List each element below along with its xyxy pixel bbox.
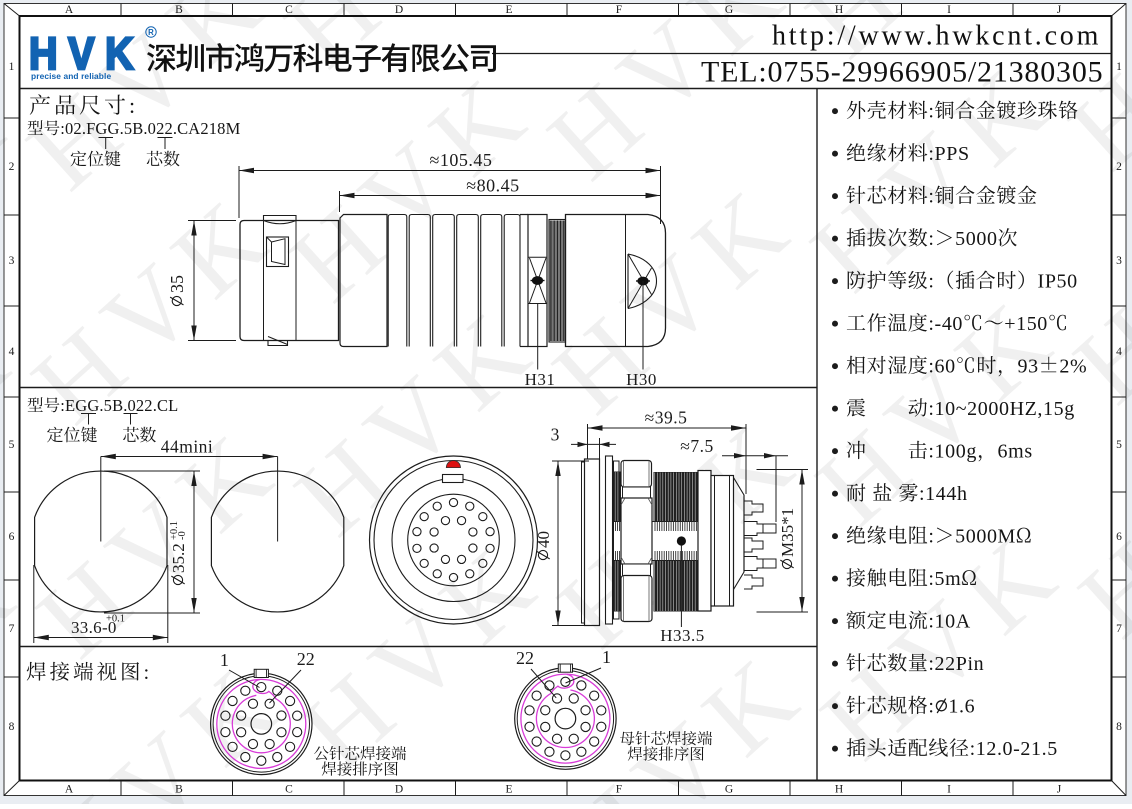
svg-text:5: 5 (9, 439, 15, 451)
svg-text:D: D (395, 783, 403, 795)
svg-text:E: E (505, 4, 512, 16)
svg-text:7: 7 (1116, 623, 1122, 635)
svg-text:工作温度:-40℃～+150℃: 工作温度:-40℃～+150℃ (846, 312, 1069, 335)
svg-text:≈39.5: ≈39.5 (645, 408, 688, 428)
svg-text:额定电流:10A: 额定电流:10A (846, 610, 971, 632)
svg-text:焊接排序图: 焊接排序图 (321, 761, 399, 779)
svg-text:H31: H31 (525, 370, 556, 389)
svg-text:I: I (947, 783, 951, 795)
svg-text:型号:02.FGG.5B.022.CA218M: 型号:02.FGG.5B.022.CA218M (27, 119, 241, 138)
svg-text:F: F (616, 4, 622, 16)
svg-text:TEL:0755-29966905/21380305: TEL:0755-29966905/21380305 (701, 56, 1103, 89)
svg-text:A: A (65, 783, 74, 795)
svg-text:≈80.45: ≈80.45 (466, 176, 519, 196)
svg-text:B: B (175, 783, 183, 795)
svg-text:耐 盐 雾:144h: 耐 盐 雾:144h (846, 483, 968, 505)
svg-text:芯数: 芯数 (122, 426, 156, 445)
svg-text:22: 22 (516, 648, 534, 668)
svg-text:6: 6 (9, 531, 15, 543)
svg-text:F: F (616, 783, 622, 795)
svg-text:插拔次数:＞5000次: 插拔次数:＞5000次 (846, 228, 1018, 250)
svg-text:定位键: 定位键 (70, 150, 121, 169)
svg-text:1: 1 (1116, 61, 1122, 73)
svg-text:针芯数量:22Pin: 针芯数量:22Pin (846, 653, 984, 675)
svg-text:H: H (835, 783, 843, 795)
svg-text:母针芯焊接端: 母针芯焊接端 (619, 730, 713, 748)
svg-text:E: E (505, 783, 512, 795)
svg-text:≈105.45: ≈105.45 (430, 150, 493, 170)
svg-text:1: 1 (220, 650, 229, 670)
svg-text:防护等级:（插合时）IP50: 防护等级:（插合时）IP50 (846, 270, 1078, 292)
svg-text:I: I (947, 4, 951, 16)
svg-text:冲 击:100g，6ms: 冲 击:100g，6ms (846, 440, 1033, 462)
svg-text:7: 7 (9, 623, 15, 635)
svg-text:5: 5 (1116, 439, 1122, 451)
svg-text:35: 35 (167, 275, 187, 293)
svg-text:6: 6 (1116, 531, 1122, 543)
svg-text:H30: H30 (626, 370, 657, 389)
svg-text:焊接端视图:: 焊接端视图: (26, 661, 152, 684)
svg-text:针芯材料:铜合金镀金: 针芯材料:铜合金镀金 (846, 185, 1038, 207)
svg-text:G: G (725, 4, 733, 16)
svg-text:22: 22 (297, 649, 315, 669)
svg-text:4: 4 (1116, 346, 1122, 358)
svg-text:焊接排序图: 焊接排序图 (627, 746, 705, 764)
svg-text:3: 3 (1116, 255, 1122, 267)
svg-text:C: C (285, 783, 293, 795)
svg-text:40: 40 (534, 531, 553, 548)
svg-text:芯数: 芯数 (146, 150, 180, 169)
svg-text:3: 3 (9, 255, 15, 267)
svg-text:D: D (395, 4, 403, 16)
svg-text:H33.5: H33.5 (660, 626, 705, 645)
svg-text:+0.1: +0.1 (106, 614, 125, 625)
svg-text:J: J (1057, 4, 1062, 16)
svg-text:J: J (1057, 783, 1062, 795)
svg-text:绝缘材料:PPS: 绝缘材料:PPS (846, 143, 970, 165)
svg-text:44mini: 44mini (161, 437, 214, 457)
svg-text:http://www.hwkcnt.com: http://www.hwkcnt.com (772, 21, 1101, 52)
svg-text:震 动:10~2000HZ,15g: 震 动:10~2000HZ,15g (846, 398, 1075, 420)
svg-text:插头适配线径:12.0-21.5: 插头适配线径:12.0-21.5 (846, 738, 1058, 760)
svg-text:H: H (835, 4, 843, 16)
svg-text:4: 4 (9, 346, 15, 358)
svg-text:1: 1 (9, 61, 15, 73)
svg-text:3: 3 (551, 425, 560, 445)
svg-text:外壳材料:铜合金镀珍珠铬: 外壳材料:铜合金镀珍珠铬 (846, 100, 1079, 122)
svg-text:2: 2 (1116, 161, 1122, 173)
svg-text:≈7.5: ≈7.5 (680, 436, 713, 456)
svg-text:G: G (725, 783, 733, 795)
svg-text:35.2: 35.2 (169, 543, 188, 573)
svg-text:深圳市鸿万科电子有限公司: 深圳市鸿万科电子有限公司 (146, 34, 498, 79)
svg-text:M35*1: M35*1 (778, 508, 797, 557)
svg-text:型号:EGG.5B.022.CL: 型号:EGG.5B.022.CL (27, 396, 178, 415)
svg-text:8: 8 (9, 721, 15, 733)
svg-text:8: 8 (1116, 721, 1122, 733)
svg-text:1: 1 (602, 647, 611, 667)
svg-text:B: B (175, 4, 183, 16)
svg-text:针芯规格:: 针芯规格: (846, 695, 935, 717)
svg-text:C: C (285, 4, 293, 16)
svg-text:2: 2 (9, 161, 15, 173)
svg-text:precise and reliable: precise and reliable (31, 71, 111, 81)
svg-text:-0: -0 (177, 531, 188, 540)
svg-text:产品尺寸:: 产品尺寸: (29, 93, 138, 118)
svg-text:1.6: 1.6 (948, 695, 975, 717)
svg-text:公针芯焊接端: 公针芯焊接端 (313, 745, 407, 763)
svg-text:A: A (65, 4, 74, 16)
svg-text:定位键: 定位键 (47, 426, 98, 445)
